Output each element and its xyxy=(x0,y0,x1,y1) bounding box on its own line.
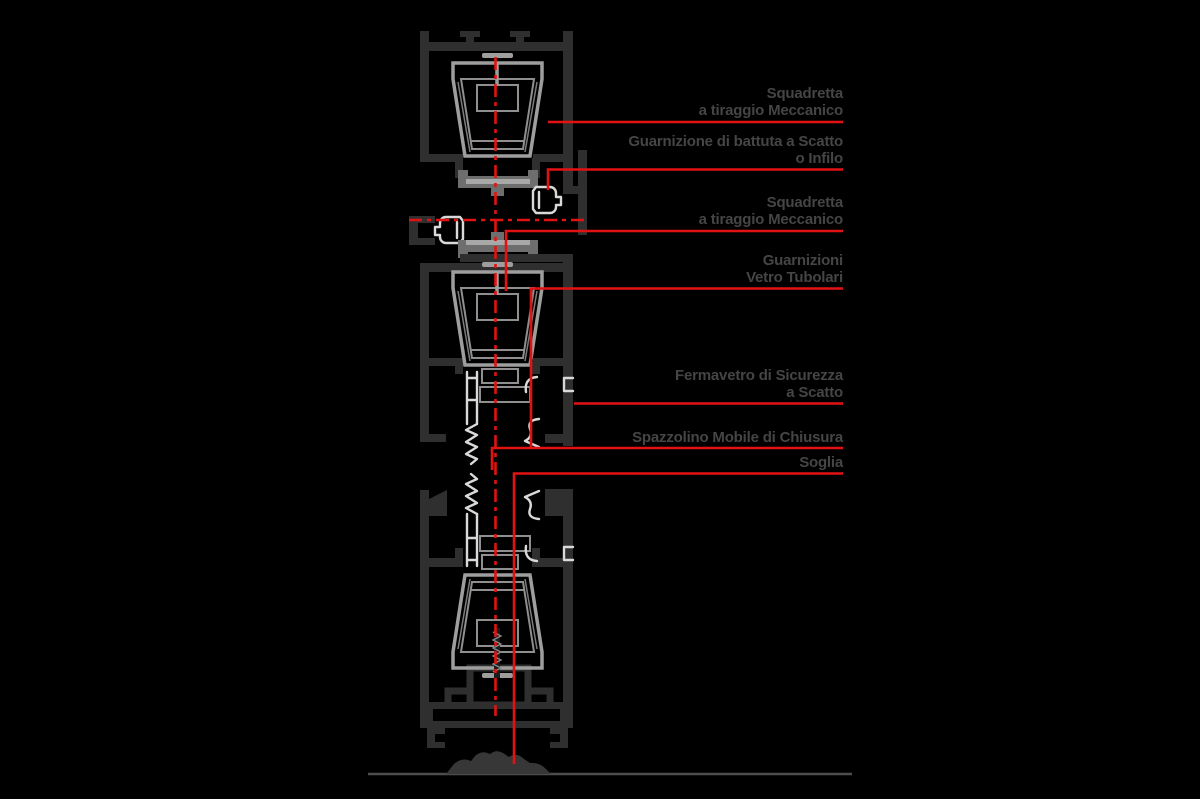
profile-section-drawing xyxy=(0,0,1200,799)
label-squadretta-top: Squadretta a tiraggio Meccanico xyxy=(699,85,843,119)
label-guarnizioni-vetro: Guarnizioni Vetro Tubolari xyxy=(746,252,843,286)
label-line: Guarnizione di battuta a Scatto xyxy=(628,133,843,150)
label-line: Soglia xyxy=(799,454,843,471)
label-guarnizione-battuta: Guarnizione di battuta a Scatto o Infilo xyxy=(628,133,843,167)
label-line: a Scatto xyxy=(675,384,843,401)
label-line: Fermavetro di Sicurezza xyxy=(675,367,843,384)
corner-cleat-middle xyxy=(453,262,542,365)
glazing-bead-assembly-mirrored xyxy=(466,474,573,569)
label-spazzolino: Spazzolino Mobile di Chiusura xyxy=(632,429,843,446)
label-line: Guarnizioni xyxy=(746,252,843,269)
label-squadretta-middle: Squadretta a tiraggio Meccanico xyxy=(699,194,843,228)
leader-guarnizione-battuta xyxy=(548,170,843,191)
label-line: a tiraggio Meccanico xyxy=(699,102,843,119)
glazing-bead-assembly xyxy=(466,369,573,464)
label-line: Squadretta xyxy=(699,85,843,102)
glide-track-upper xyxy=(458,170,538,196)
label-line: Squadretta xyxy=(699,194,843,211)
label-line: o Infilo xyxy=(628,150,843,167)
label-line: Vetro Tubolari xyxy=(746,269,843,286)
leader-spazzolino xyxy=(492,448,843,470)
corner-cleat-top xyxy=(453,53,542,156)
batten-gasket-right xyxy=(533,187,561,213)
threshold-gasket xyxy=(446,751,551,774)
label-soglia: Soglia xyxy=(799,454,843,471)
label-line: a tiraggio Meccanico xyxy=(699,211,843,228)
label-fermavetro: Fermavetro di Sicurezza a Scatto xyxy=(675,367,843,401)
label-line: Spazzolino Mobile di Chiusura xyxy=(632,429,843,446)
diagram-canvas: Squadretta a tiraggio Meccanico Guarnizi… xyxy=(0,0,1200,799)
